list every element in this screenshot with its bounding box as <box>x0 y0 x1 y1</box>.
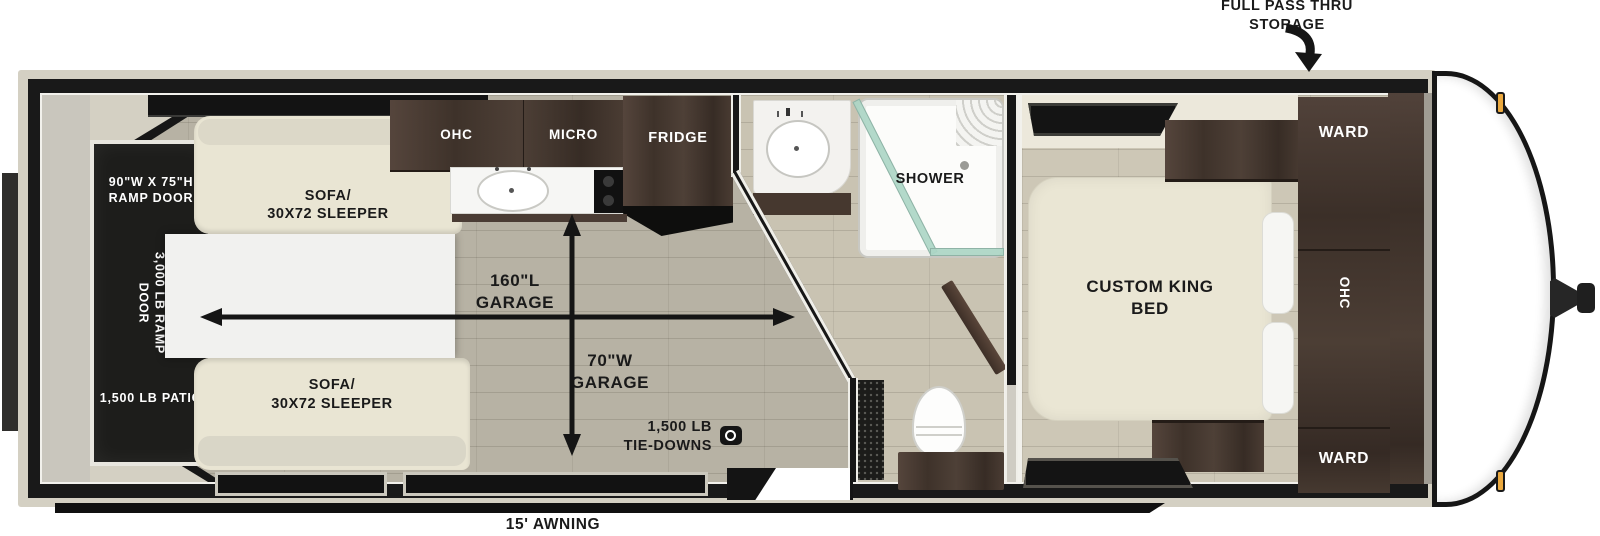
tie-downs-label: 1,500 LB TIE-DOWNS <box>590 418 712 455</box>
garage-bottom-window-front <box>403 472 708 496</box>
bath-vanity-base <box>753 193 851 215</box>
nightstand-top <box>1165 120 1303 182</box>
sofa-bottom-label-line1: SOFA/ <box>194 376 470 395</box>
ramp-door-capacity-label: 3,000 LB RAMP DOOR <box>135 252 168 354</box>
garage-length-label: 160"L GARAGE <box>440 270 590 314</box>
hitch-arm <box>1550 278 1580 318</box>
refrigerator: FRIDGE <box>623 96 733 206</box>
bedroom-window-bottom <box>1023 458 1193 488</box>
wall-bath-bedroom-jamb <box>1005 385 1018 482</box>
tie-downs-line1: 1,500 LB <box>590 418 712 437</box>
wardrobe-column: WARD OHC WARD <box>1298 97 1390 493</box>
refrigerator-label: FRIDGE <box>648 129 708 174</box>
kitchen-overhead-cabinet: OHC MICRO <box>390 100 623 172</box>
garage-bed-platform <box>165 234 455 358</box>
sofa-bottom: SOFA/ 30X72 SLEEPER <box>194 358 470 470</box>
pillow-top <box>1262 212 1294 314</box>
king-bed-label: CUSTOM KING BED <box>1029 276 1271 320</box>
shower-drain <box>960 161 969 170</box>
garage-width-line1: 70"W <box>535 350 685 372</box>
wall-bath-lower <box>848 378 858 482</box>
wardrobe-top-label: WARD <box>1298 123 1390 143</box>
pass-thru-storage-label: FULL PASS THRU STORAGE <box>1187 0 1387 34</box>
wardrobe-bottom-label: WARD <box>1298 449 1390 469</box>
wardrobe-divider-bottom <box>1298 427 1390 429</box>
shower-label: SHOWER <box>860 170 1000 189</box>
tie-downs-line2: TIE-DOWNS <box>590 437 712 456</box>
sofa-top-label-line1: SOFA/ <box>194 187 462 206</box>
shower-glass-panel <box>930 248 1004 256</box>
shower-corner-shelf <box>956 100 1002 146</box>
wall-bath-bedroom <box>1005 95 1018 385</box>
awning-bar <box>55 503 1165 513</box>
kitchen-faucet-icon <box>495 167 499 171</box>
sofa-top-label: SOFA/ 30X72 SLEEPER <box>194 187 462 224</box>
bedroom-window-top <box>1028 103 1178 136</box>
cooktop <box>594 170 623 213</box>
bath-sink-drain <box>794 146 799 151</box>
kitchen-counter <box>450 167 623 214</box>
microwave-label: MICRO <box>549 126 598 144</box>
ohc-kitchen-label: OHC <box>440 126 472 144</box>
garage-width-label: 70"W GARAGE <box>535 350 685 394</box>
garage-bottom-window-rear <box>215 472 387 496</box>
patio-capacity-label: 1,500 LB PATIO <box>94 390 208 406</box>
pass-thru-storage-line1: FULL PASS THRU <box>1187 0 1387 16</box>
wall-kitchen-bath <box>731 95 741 177</box>
rear-ramp-threshold <box>42 95 92 482</box>
toilet-base-cabinet <box>898 452 1004 490</box>
bath-faucet-icon <box>786 108 790 116</box>
sofa-bottom-label: SOFA/ 30X72 SLEEPER <box>194 376 470 413</box>
ramp-door-size-line2: RAMP DOOR <box>94 190 208 206</box>
kitchen-base-cabinet <box>452 214 627 222</box>
ramp-door-capacity-line2: DOOR <box>135 252 151 354</box>
awning-label: 15' AWNING <box>433 515 673 535</box>
ramp-door-size-line1: 90"W X 75"H <box>94 174 208 190</box>
ohc-bedroom-label: OHC <box>1335 277 1353 309</box>
sofa-top-label-line2: 30X72 SLEEPER <box>194 205 462 224</box>
ramp-door-size-label: 90"W X 75"H RAMP DOOR <box>94 174 208 207</box>
wardrobe-divider-top <box>1298 249 1390 251</box>
marker-light-bottom <box>1496 470 1505 492</box>
garage-length-line2: GARAGE <box>440 292 590 314</box>
sofa-bottom-bolster <box>198 436 466 466</box>
utility-column <box>856 380 884 480</box>
hitch-coupler <box>1577 283 1595 313</box>
patio-deck-panel <box>2 173 18 431</box>
king-bed: CUSTOM KING BED <box>1028 177 1272 421</box>
sofa-bottom-label-line2: 30X72 SLEEPER <box>194 395 470 414</box>
entry-door <box>727 468 853 500</box>
king-bed-label-line1: CUSTOM KING <box>1029 276 1271 298</box>
kitchen-sink-drain <box>509 188 514 193</box>
floorplan: 90"W X 75"H RAMP DOOR 3,000 LB RAMP DOOR… <box>0 0 1600 536</box>
front-pass-thru-storage <box>1388 93 1434 484</box>
front-cap <box>1432 71 1556 507</box>
tie-down-ring-icon <box>720 426 742 445</box>
pillow-bottom <box>1262 322 1294 414</box>
entry-step <box>730 468 776 500</box>
pass-thru-arrow-icon <box>1286 28 1322 72</box>
pass-thru-storage-line2: STORAGE <box>1187 16 1387 35</box>
marker-light-top <box>1496 92 1505 114</box>
garage-length-line1: 160"L <box>440 270 590 292</box>
garage-width-line2: GARAGE <box>535 372 685 394</box>
king-bed-label-line2: BED <box>1029 298 1271 320</box>
